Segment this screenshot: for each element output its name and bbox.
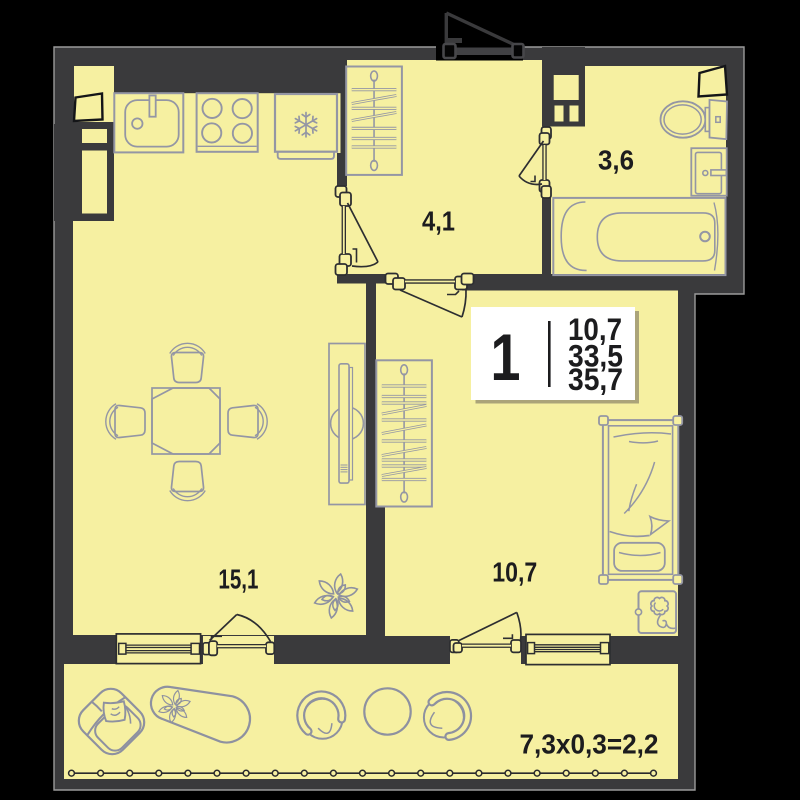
svg-text:4,1: 4,1 bbox=[422, 206, 455, 237]
svg-text:3,6: 3,6 bbox=[598, 145, 634, 176]
svg-text:35,7: 35,7 bbox=[568, 361, 623, 397]
svg-text:7,3x0,3=2,2: 7,3x0,3=2,2 bbox=[520, 729, 659, 760]
svg-text:10,7: 10,7 bbox=[492, 557, 537, 588]
svg-text:15,1: 15,1 bbox=[218, 564, 258, 595]
svg-text:1: 1 bbox=[491, 320, 521, 394]
